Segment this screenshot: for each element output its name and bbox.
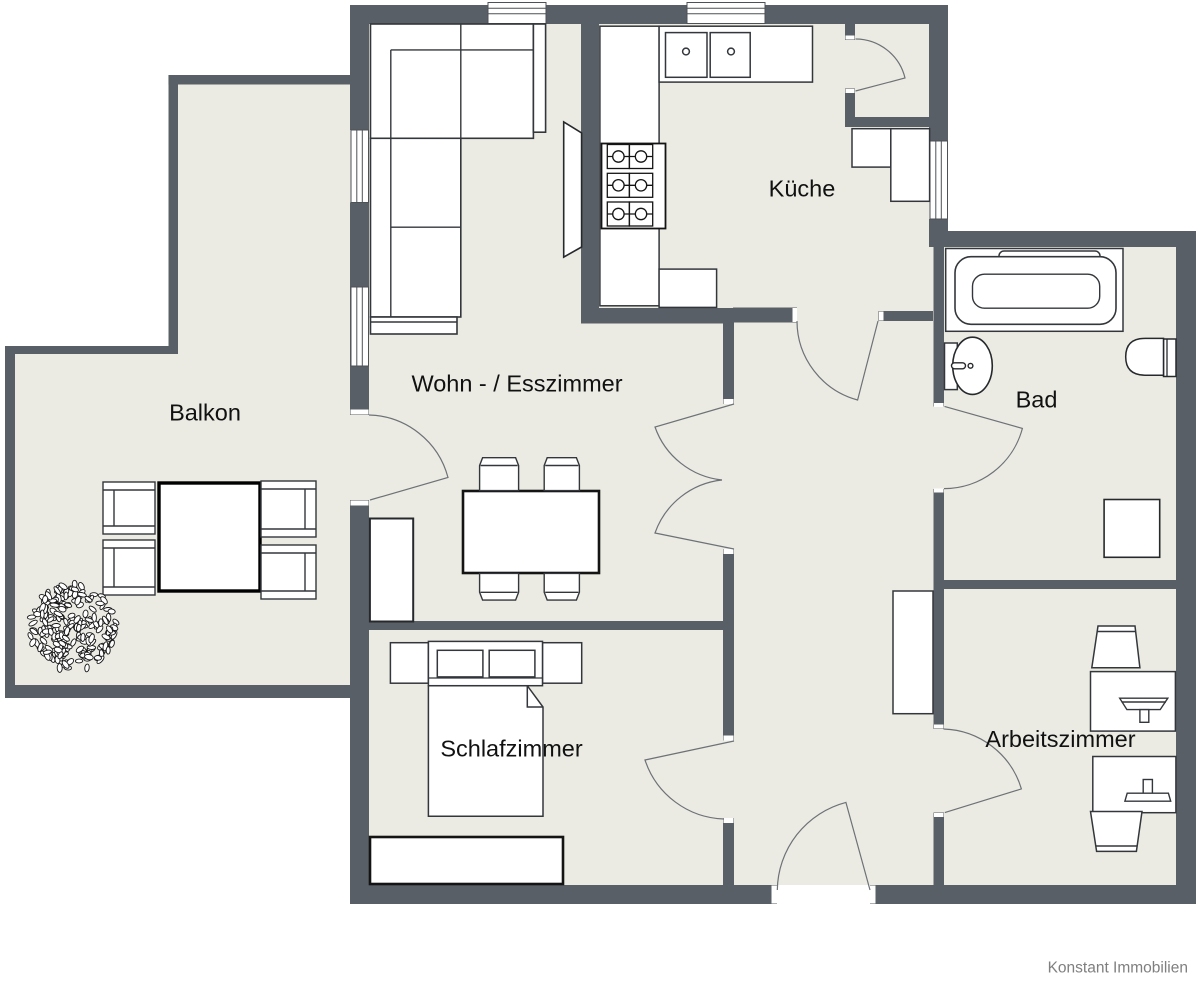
svg-text:Balkon: Balkon bbox=[169, 400, 241, 426]
svg-text:Konstant Immobilien: Konstant Immobilien bbox=[1048, 960, 1188, 977]
svg-text:Arbeitszimmer: Arbeitszimmer bbox=[985, 726, 1135, 752]
svg-text:Küche: Küche bbox=[769, 176, 836, 202]
svg-text:Schlafzimmer: Schlafzimmer bbox=[440, 736, 583, 762]
svg-text:Wohn - / Esszimmer: Wohn - / Esszimmer bbox=[411, 371, 622, 397]
svg-text:Bad: Bad bbox=[1016, 387, 1058, 413]
